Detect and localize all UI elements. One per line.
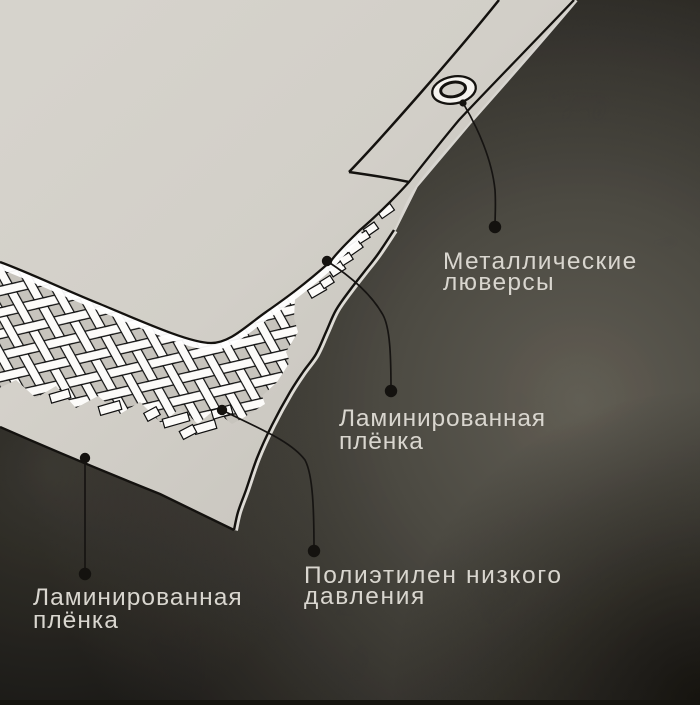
svg-text:плёнка: плёнка bbox=[33, 607, 119, 634]
svg-text:давления: давления bbox=[304, 583, 426, 610]
svg-text:плёнка: плёнка bbox=[339, 428, 424, 455]
svg-text:люверсы: люверсы bbox=[443, 269, 555, 296]
